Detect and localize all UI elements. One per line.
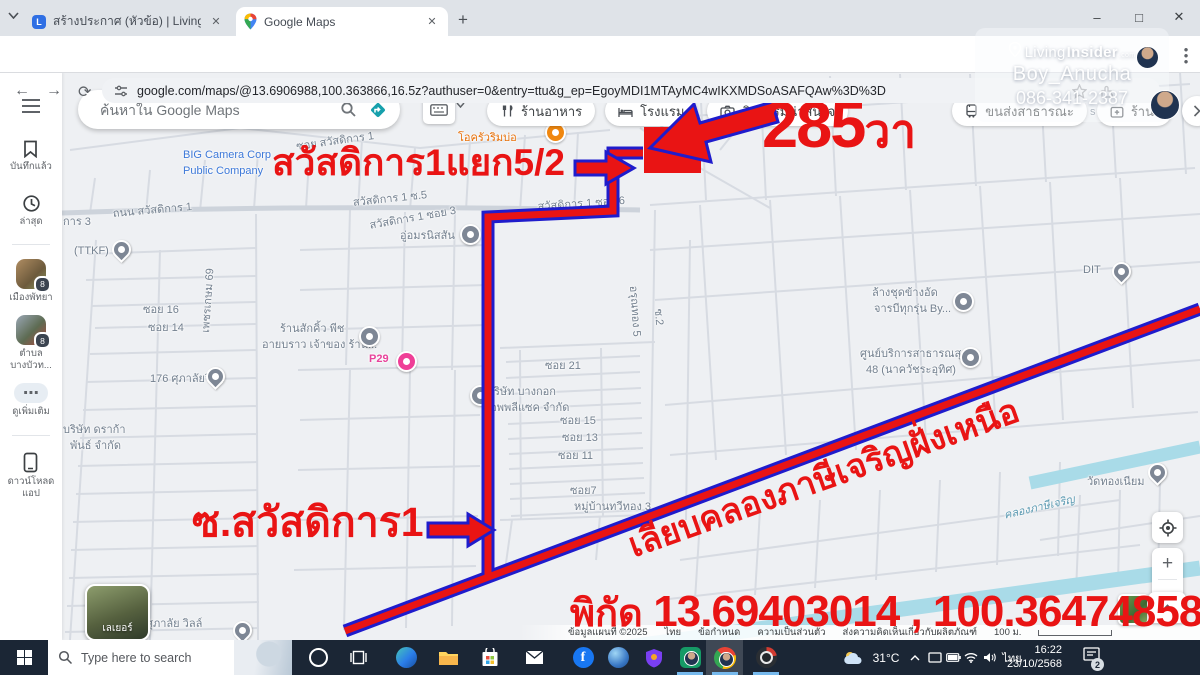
divider (12, 435, 50, 436)
menu-button[interactable] (21, 98, 41, 114)
sidebar-item-more[interactable]: ⋯ ดูเพิ่มเติม (12, 383, 50, 417)
notification-badge: 2 (1091, 658, 1104, 671)
file-explorer-icon[interactable] (430, 640, 466, 675)
battery-icon[interactable] (944, 640, 962, 675)
brand-living: Living (1025, 44, 1066, 61)
facebook-icon[interactable]: f (565, 640, 601, 675)
reload-button[interactable]: ⟳ (78, 82, 91, 102)
taskbar-search-placeholder: Type here to search (81, 651, 234, 665)
sidebar-item-recents[interactable]: ล่าสุด (19, 194, 42, 227)
livinginsider-favicon: L (32, 15, 46, 29)
cortana-icon (309, 648, 328, 667)
browser-menu-icon[interactable]: ••• (1182, 47, 1190, 65)
cortana-button[interactable] (300, 640, 336, 675)
place-thumbnail: 8 (16, 259, 46, 289)
divider (12, 244, 50, 245)
search-highlight-image[interactable] (234, 640, 292, 675)
tray-device-icon[interactable] (926, 640, 944, 675)
ellipsis-icon: ⋯ (14, 383, 48, 403)
dark-app-icon[interactable] (748, 640, 784, 675)
back-button[interactable]: ← (14, 82, 30, 100)
tab-google-maps[interactable]: Google Maps ✕ (236, 7, 448, 36)
chrome-icon[interactable] (707, 640, 743, 675)
start-button[interactable] (6, 640, 42, 675)
forward-button[interactable]: → (46, 82, 62, 100)
task-view-icon (350, 650, 367, 665)
phone-icon (23, 452, 38, 473)
bookmark-icon (22, 140, 39, 158)
tab-close-button[interactable]: ✕ (424, 14, 440, 30)
tray-expand-icon[interactable] (906, 640, 924, 675)
search-icon (58, 650, 73, 665)
taskbar-search[interactable]: Type here to search (48, 640, 292, 675)
mail-icon[interactable] (516, 640, 552, 675)
minimize-button[interactable]: – (1080, 4, 1114, 30)
new-tab-button[interactable]: + (458, 10, 468, 30)
livinginsider-app-icon[interactable] (672, 640, 708, 675)
windows-taskbar: Type here to search (0, 640, 1200, 675)
volume-icon[interactable] (980, 640, 998, 675)
agent-avatar (1150, 90, 1180, 120)
wifi-icon[interactable] (962, 640, 980, 675)
photos-icon[interactable] (600, 640, 636, 675)
watermark-username: Boy_Anucha (1013, 63, 1131, 86)
shield-app-icon[interactable] (636, 640, 672, 675)
task-view-button[interactable] (340, 640, 376, 675)
maps-sidebar: บันทึกแล้ว ล่าสุด 8 เมืองพัทยา 8 ตำบล บา… (0, 72, 62, 640)
tab-livinginsider[interactable]: L สร้างประกาศ (หัวข้อ) | Livinginside ✕ (24, 7, 232, 36)
site-settings-icon (114, 85, 128, 97)
sidebar-item-pattaya[interactable]: 8 เมืองพัทยา (9, 259, 52, 303)
maximize-button[interactable]: □ (1122, 4, 1156, 30)
clock[interactable]: 16:22 23/10/2568 (1007, 644, 1062, 672)
microsoft-store-icon[interactable] (472, 640, 508, 675)
close-button[interactable]: ✕ (1162, 4, 1196, 30)
tab-search-button[interactable] (8, 12, 19, 19)
brand-insider: Insider (1067, 44, 1118, 61)
weather-icon[interactable] (838, 640, 868, 675)
url-text: google.com/maps/@13.6906988,100.363866,1… (137, 84, 886, 98)
edge-icon[interactable] (388, 640, 424, 675)
pin-icon (1009, 42, 1021, 57)
sidebar-item-bangbuathong[interactable]: 8 ตำบล บางบัวท... (10, 315, 52, 371)
livinginsider-watermark: LivingInsider.com Boy_Anucha 086-341-238… (975, 28, 1169, 122)
annotation-junction: สวัสดิการ1แยก5/2 (272, 144, 565, 181)
screen: โอครัวริมบ่อBIG Camera CorpPublic Compan… (0, 0, 1200, 675)
area-arrow (650, 102, 778, 162)
sidebar-item-get-app[interactable]: ดาวน์โหลด แอป (8, 452, 55, 499)
place-thumbnail: 8 (16, 315, 46, 345)
google-maps-favicon (244, 13, 257, 30)
watermark-phone: 086-341-2387 (1016, 88, 1128, 109)
sidebar-item-saved[interactable]: บันทึกแล้ว (10, 140, 52, 172)
hamburger-icon (21, 98, 41, 114)
chevron-down-icon (8, 12, 19, 19)
temperature[interactable]: 31°C (868, 640, 904, 675)
annotation-coordinates: พิกัด 13.69403014 , 100.36474858 (570, 590, 1200, 634)
browser-profile-avatar[interactable] (1136, 46, 1159, 69)
windows-logo-icon (17, 650, 32, 665)
history-icon (22, 194, 41, 213)
annotation-soi: ซ.สวัสดิการ1 (192, 502, 424, 543)
tab-close-button[interactable]: ✕ (208, 14, 224, 30)
